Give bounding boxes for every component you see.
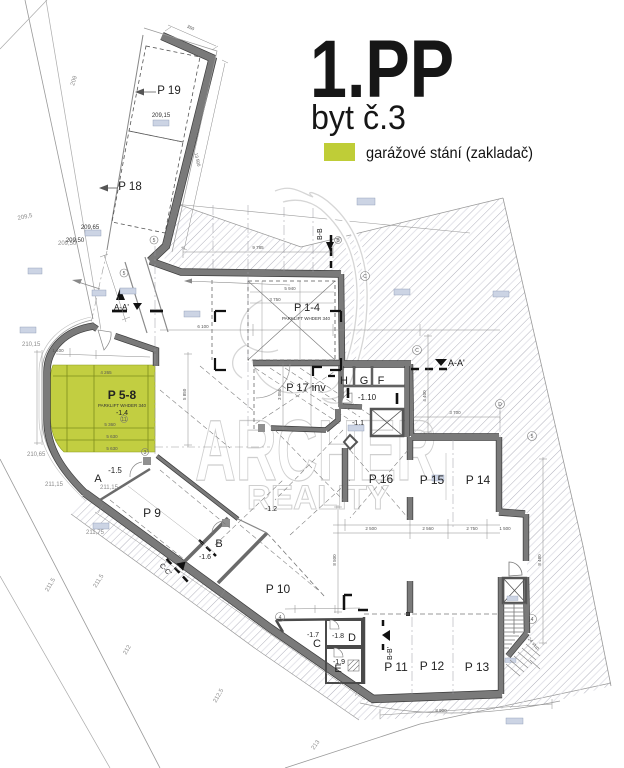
svg-text:350: 350 <box>186 24 195 32</box>
svg-text:5 940: 5 940 <box>284 286 296 291</box>
svg-text:H: H <box>340 375 348 387</box>
svg-text:210,15: 210,15 <box>22 342 41 348</box>
svg-text:6 100: 6 100 <box>197 324 209 329</box>
svg-text:209,50: 209,50 <box>66 238 85 244</box>
svg-text:212,5: 212,5 <box>213 687 226 704</box>
svg-text:C: C <box>313 638 321 650</box>
svg-text:-1.6: -1.6 <box>199 554 211 561</box>
svg-text:4 265: 4 265 <box>100 370 112 375</box>
svg-text:11: 11 <box>121 417 126 423</box>
svg-text:P 11: P 11 <box>384 660 408 674</box>
svg-text:G: G <box>360 375 369 387</box>
svg-text:209: 209 <box>70 75 79 87</box>
svg-text:5: 5 <box>123 271 126 277</box>
svg-text:P 10: P 10 <box>266 582 291 596</box>
svg-text:P 14: P 14 <box>466 473 491 487</box>
svg-text:209,15: 209,15 <box>152 113 171 119</box>
svg-text:2 500: 2 500 <box>365 526 377 531</box>
svg-text:3: 3 <box>144 450 147 456</box>
svg-text:D: D <box>348 632 356 644</box>
svg-text:A: A <box>94 473 102 485</box>
svg-text:-1.9: -1.9 <box>333 659 345 666</box>
svg-text:P 17 inv: P 17 inv <box>286 382 326 394</box>
svg-text:P 15: P 15 <box>420 473 445 487</box>
svg-text:2 560: 2 560 <box>422 526 434 531</box>
svg-text:210,65: 210,65 <box>27 452 46 458</box>
svg-text:B-B': B-B' <box>387 647 394 660</box>
svg-text:211,5: 211,5 <box>93 573 106 589</box>
svg-text:-1.1: -1.1 <box>352 420 364 427</box>
svg-text:PARKLIFT WHDER 340: PARKLIFT WHDER 340 <box>98 403 147 408</box>
svg-text:B-B: B-B <box>317 228 324 240</box>
svg-text:C: C <box>415 348 419 354</box>
svg-text:-1.2: -1.2 <box>265 506 277 513</box>
svg-text:5 360: 5 360 <box>104 422 116 427</box>
svg-text:-1.10: -1.10 <box>358 393 377 402</box>
svg-text:F: F <box>378 375 385 387</box>
svg-text:4 400: 4 400 <box>422 390 427 402</box>
svg-text:209,65: 209,65 <box>81 225 100 231</box>
svg-text:-1.8: -1.8 <box>332 633 344 640</box>
svg-text:P 12: P 12 <box>420 659 445 673</box>
svg-text:PARKLIFT WHDER 340: PARKLIFT WHDER 340 <box>282 316 331 321</box>
svg-text:P 19: P 19 <box>157 85 180 97</box>
svg-text:P 5-8: P 5-8 <box>108 388 137 402</box>
svg-text:P 1-4: P 1-4 <box>294 302 320 314</box>
svg-text:9 785: 9 785 <box>252 245 264 250</box>
svg-text:211,75: 211,75 <box>86 530 105 536</box>
svg-text:5: 5 <box>531 434 534 440</box>
svg-text:C: C <box>363 274 367 280</box>
svg-text:P 18: P 18 <box>118 181 141 193</box>
svg-text:D: D <box>498 402 502 408</box>
svg-text:211,15: 211,15 <box>100 485 119 491</box>
svg-text:-1.5: -1.5 <box>108 466 122 475</box>
svg-text:5 630: 5 630 <box>106 446 118 451</box>
svg-text:byt č.3: byt č.3 <box>311 99 406 137</box>
svg-text:P 13: P 13 <box>465 660 490 674</box>
svg-text:213: 213 <box>311 739 322 751</box>
svg-text:1 400: 1 400 <box>52 348 64 353</box>
svg-text:211,15: 211,15 <box>45 482 64 488</box>
svg-text:A-A': A-A' <box>448 358 465 368</box>
svg-text:209,5: 209,5 <box>17 213 34 222</box>
svg-text:4: 4 <box>531 617 534 623</box>
svg-text:P 16: P 16 <box>369 472 394 486</box>
svg-text:5 850: 5 850 <box>182 388 187 400</box>
svg-text:3 750: 3 750 <box>269 297 281 302</box>
svg-text:P 9: P 9 <box>143 506 161 520</box>
svg-text:3 700: 3 700 <box>449 410 461 415</box>
svg-text:5: 5 <box>153 238 156 244</box>
svg-text:-1.4: -1.4 <box>116 410 128 417</box>
svg-text:2 750: 2 750 <box>466 526 478 531</box>
svg-text:garážové stání (zakladač): garážové stání (zakladač) <box>366 145 533 162</box>
svg-text:8 500: 8 500 <box>332 554 337 566</box>
svg-text:-1.7: -1.7 <box>307 632 319 639</box>
svg-text:5 630: 5 630 <box>106 434 118 439</box>
svg-text:211,5: 211,5 <box>45 577 58 593</box>
svg-text:B: B <box>215 538 222 550</box>
svg-text:1 500: 1 500 <box>499 526 511 531</box>
svg-text:8 900: 8 900 <box>435 708 447 713</box>
svg-text:8 480: 8 480 <box>537 554 542 566</box>
svg-text:4: 4 <box>279 615 282 621</box>
svg-text:13 500: 13 500 <box>193 152 201 167</box>
svg-text:212: 212 <box>123 644 134 656</box>
